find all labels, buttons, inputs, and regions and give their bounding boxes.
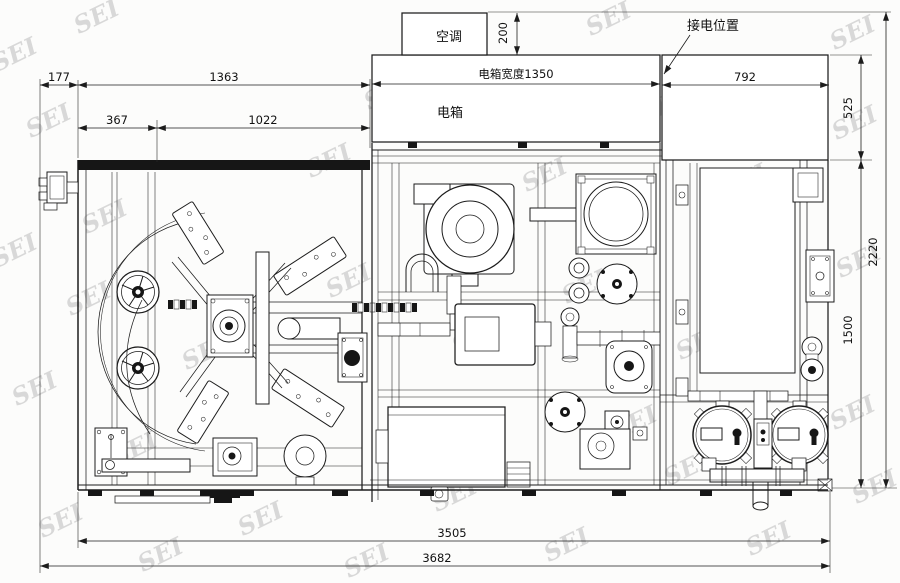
- watermark-sei: SEI: [233, 495, 289, 542]
- dim-177-value: 177: [48, 70, 70, 84]
- dimension-3505: 3505: [78, 526, 830, 541]
- dimension-1500: 1500: [841, 160, 861, 488]
- center-bearing-block: [207, 295, 253, 357]
- pump-left: [693, 401, 752, 464]
- dimension-200: 200: [496, 13, 517, 55]
- handwheel: [117, 271, 159, 313]
- reel-arc: [98, 220, 196, 444]
- right-section: [660, 55, 834, 510]
- watermark-sei: SEI: [741, 515, 797, 562]
- cad-drawing-page: SEI SEI SEI SEI SEI SEI SEI SEI SEI SEI …: [0, 0, 900, 583]
- watermark-sei: SEI: [847, 463, 900, 510]
- dim-367-value: 367: [106, 113, 128, 127]
- watermark-sei: SEI: [539, 521, 595, 568]
- handwheel: [117, 347, 159, 389]
- dimension-367: 367: [78, 113, 157, 128]
- rounded-pump-unit: [606, 341, 652, 393]
- watermark-sei: SEI: [517, 151, 573, 198]
- side-rollers: [801, 337, 823, 381]
- dimension-1022: 1022: [157, 113, 370, 128]
- watermark-sei: SEI: [581, 0, 637, 42]
- watermark-sei: SEI: [77, 193, 133, 240]
- wall-motor-mount: [338, 333, 367, 382]
- base-box: [376, 407, 530, 487]
- clamp-plate: [271, 368, 344, 427]
- dim-200-value: 200: [496, 22, 510, 44]
- air-conditioner-label: 空调: [436, 30, 462, 45]
- clamp-plate: [172, 201, 224, 265]
- power-connection-label: 接电位置: [687, 18, 739, 34]
- roller: [278, 318, 340, 339]
- bottom-unit: [580, 427, 647, 469]
- watermark-sei: SEI: [133, 531, 189, 578]
- bottom-guide-plate: [213, 438, 257, 476]
- watermark-sei: SEI: [339, 537, 395, 583]
- dim-792-value: 792: [734, 70, 756, 84]
- watermark-sei: SEI: [7, 365, 63, 412]
- pump-center-column: [754, 419, 772, 468]
- watermark-sei: SEI: [21, 97, 77, 144]
- watermark-sei: SEI: [0, 227, 42, 274]
- dim-1500-value: 1500: [841, 315, 855, 344]
- dim-3682-value: 3682: [422, 551, 451, 565]
- dim-2220-value: 2220: [866, 237, 880, 266]
- side-block: [806, 250, 834, 302]
- machine-top-view-drawing: SEI SEI SEI SEI SEI SEI SEI SEI SEI SEI …: [0, 0, 900, 583]
- left-motor-box: [39, 172, 78, 210]
- small-fan-unit: [284, 435, 326, 485]
- watermark-sei: SEI: [69, 0, 125, 40]
- watermark-sei: SEI: [33, 497, 89, 544]
- clamp-plate: [177, 380, 229, 444]
- door-panel: [700, 168, 795, 373]
- main-blower: [414, 184, 514, 286]
- dim-1363-value: 1363: [209, 70, 238, 84]
- dim-3505-value: 3505: [437, 526, 466, 540]
- dim-525-value: 525: [841, 97, 855, 119]
- watermark-sei: SEI: [0, 31, 42, 78]
- dim-1022-value: 1022: [248, 113, 277, 127]
- top-frame-bar: [78, 160, 370, 170]
- electric-box-label: 电箱: [437, 105, 463, 121]
- dimension-177: 177: [40, 70, 78, 85]
- pump-right: [770, 401, 829, 464]
- watermark-sei: SEI: [61, 275, 117, 322]
- guide-plate: [256, 252, 269, 404]
- dim-box-width-value: 电箱宽度1350: [478, 67, 553, 81]
- bolted-flange: [597, 264, 637, 304]
- dimension-1363: 1363: [78, 70, 370, 85]
- gearbox: [455, 304, 551, 365]
- watermark-sei: SEI: [825, 389, 881, 436]
- corner-bracket: [793, 168, 823, 202]
- watermark-sei: SEI: [825, 9, 881, 56]
- bolted-flange: [545, 392, 585, 432]
